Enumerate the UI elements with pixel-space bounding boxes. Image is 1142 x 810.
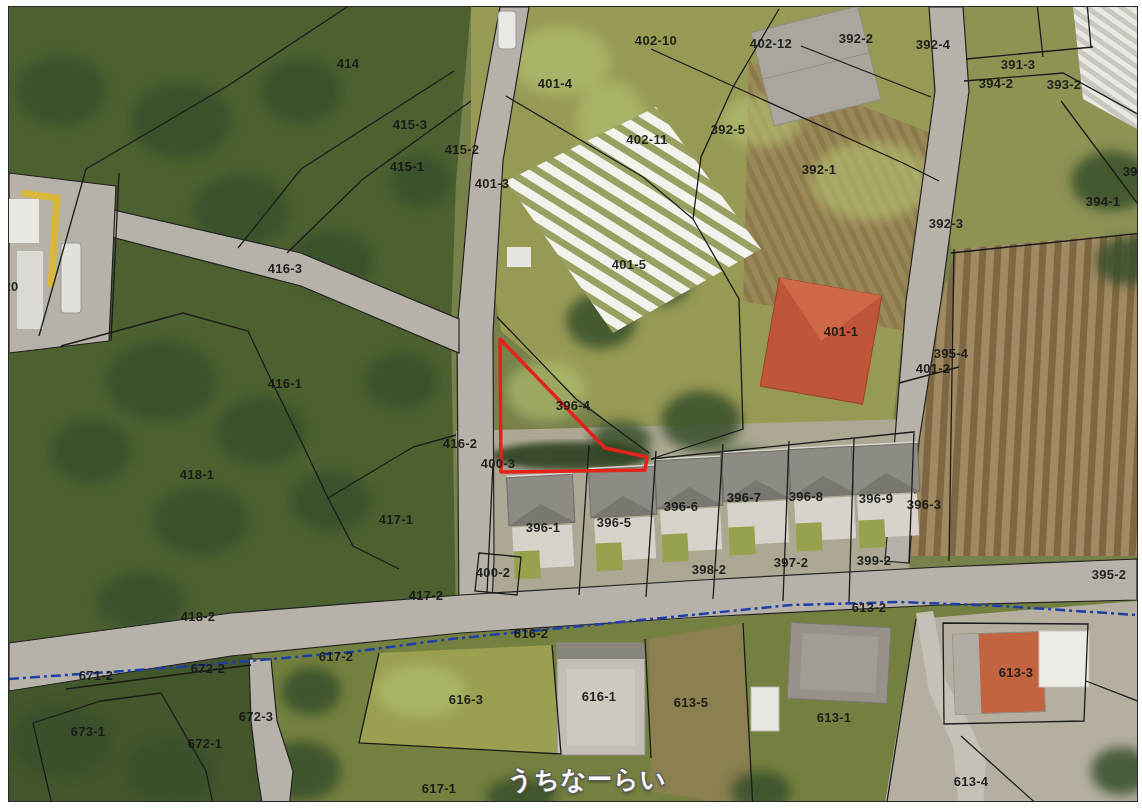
parcel-label-402-12: 402-12	[750, 36, 792, 51]
parcel-label-671-2: 671-2	[79, 668, 114, 683]
parcel-label-394-1: 394-1	[1086, 194, 1121, 209]
parcel-label-613-5: 613-5	[674, 695, 709, 710]
parcel-label-418-1: 418-1	[180, 467, 215, 482]
vehicle-on-road	[498, 11, 516, 49]
parcel-label-418-2: 418-2	[181, 609, 216, 624]
parcel-label-672-2: 672-2	[191, 661, 226, 676]
parcel-label-672-1: 672-1	[188, 736, 223, 751]
parcel-label-417-1: 417-1	[379, 512, 414, 527]
aerial-photo-frame: 414415-3415-2415-1401-3401-4402-10402-11…	[8, 6, 1138, 802]
parcel-label-401-4: 401-4	[538, 76, 573, 91]
parcel-label-616-3: 616-3	[449, 692, 484, 707]
parcel-label-396-8: 396-8	[789, 489, 824, 504]
parcel-label-395-4: 395-4	[934, 346, 969, 361]
white-truck	[61, 243, 81, 313]
parcel-label-394-2: 394-2	[979, 76, 1014, 91]
parcel-label-416-3: 416-3	[268, 261, 303, 276]
parcel-label-396-5: 396-5	[597, 515, 632, 530]
parcel-label-414: 414	[337, 56, 360, 71]
parcel-label-616-2: 616-2	[514, 626, 549, 641]
parcel-label-416-1: 416-1	[268, 376, 303, 391]
parcel-label-396-7: 396-7	[727, 490, 762, 505]
parcel-label-415-2: 415-2	[445, 142, 480, 157]
parcel-label-400-3: 400-3	[481, 456, 516, 471]
parcel-label-392-3: 392-3	[929, 216, 964, 231]
parcel-label-397-2: 397-2	[774, 555, 809, 570]
parcel-label-393: 393	[1123, 164, 1137, 179]
parcel-label-396-6: 396-6	[664, 499, 699, 514]
parcel-label-616-1: 616-1	[582, 689, 617, 704]
orange-roof-house-401-1	[760, 278, 882, 404]
parcel-label-392-5: 392-5	[711, 122, 746, 137]
parcel-label-396-4: 396-4	[556, 398, 591, 413]
parcel-label-398-2: 398-2	[692, 562, 727, 577]
parcel-label-417-2: 417-2	[409, 588, 444, 603]
scanned-map-page: 414415-3415-2415-1401-3401-4402-10402-11…	[0, 0, 1142, 810]
parcel-label-391-3: 391-3	[1001, 57, 1036, 72]
parcel-label-401-2: 401-2	[916, 361, 951, 376]
parcel-label-20: 20	[9, 279, 19, 294]
parcel-label-400-2: 400-2	[476, 565, 511, 580]
parcel-label-416-2: 416-2	[443, 436, 478, 451]
parcel-label-395-2: 395-2	[1092, 567, 1127, 582]
parcel-label-402-10: 402-10	[635, 33, 677, 48]
parcel-label-613-4: 613-4	[954, 774, 989, 789]
parcel-label-392-1: 392-1	[802, 162, 837, 177]
parcel-label-392-2: 392-2	[839, 31, 874, 46]
parcel-label-617-1: 617-1	[422, 781, 457, 796]
parcel-label-617-2: 617-2	[319, 649, 354, 664]
parcel-label-392-4: 392-4	[916, 37, 951, 52]
parcel-label-401-3: 401-3	[475, 176, 510, 191]
parcel-label-613-2: 613-2	[852, 600, 887, 615]
parcel-label-613-1: 613-1	[817, 710, 852, 725]
parcel-label-401-1: 401-1	[824, 324, 859, 339]
aerial-map-canvas: 414415-3415-2415-1401-3401-4402-10402-11…	[9, 7, 1137, 801]
parcel-label-415-1: 415-1	[390, 159, 425, 174]
parcel-label-402-11: 402-11	[626, 132, 668, 147]
parcel-label-673-1: 673-1	[71, 724, 106, 739]
building-613-1	[787, 622, 891, 703]
parcel-label-672-3: 672-3	[239, 709, 274, 724]
parcel-label-399-2: 399-2	[857, 553, 892, 568]
parcel-label-396-9: 396-9	[859, 491, 894, 506]
parcel-label-401-5: 401-5	[612, 257, 647, 272]
parcel-label-393-2: 393-2	[1047, 77, 1082, 92]
parcel-label-396-3: 396-3	[907, 497, 942, 512]
parcel-label-415-3: 415-3	[393, 117, 428, 132]
parcel-label-396-1: 396-1	[526, 520, 561, 535]
parcel-label-613-3: 613-3	[999, 665, 1034, 680]
